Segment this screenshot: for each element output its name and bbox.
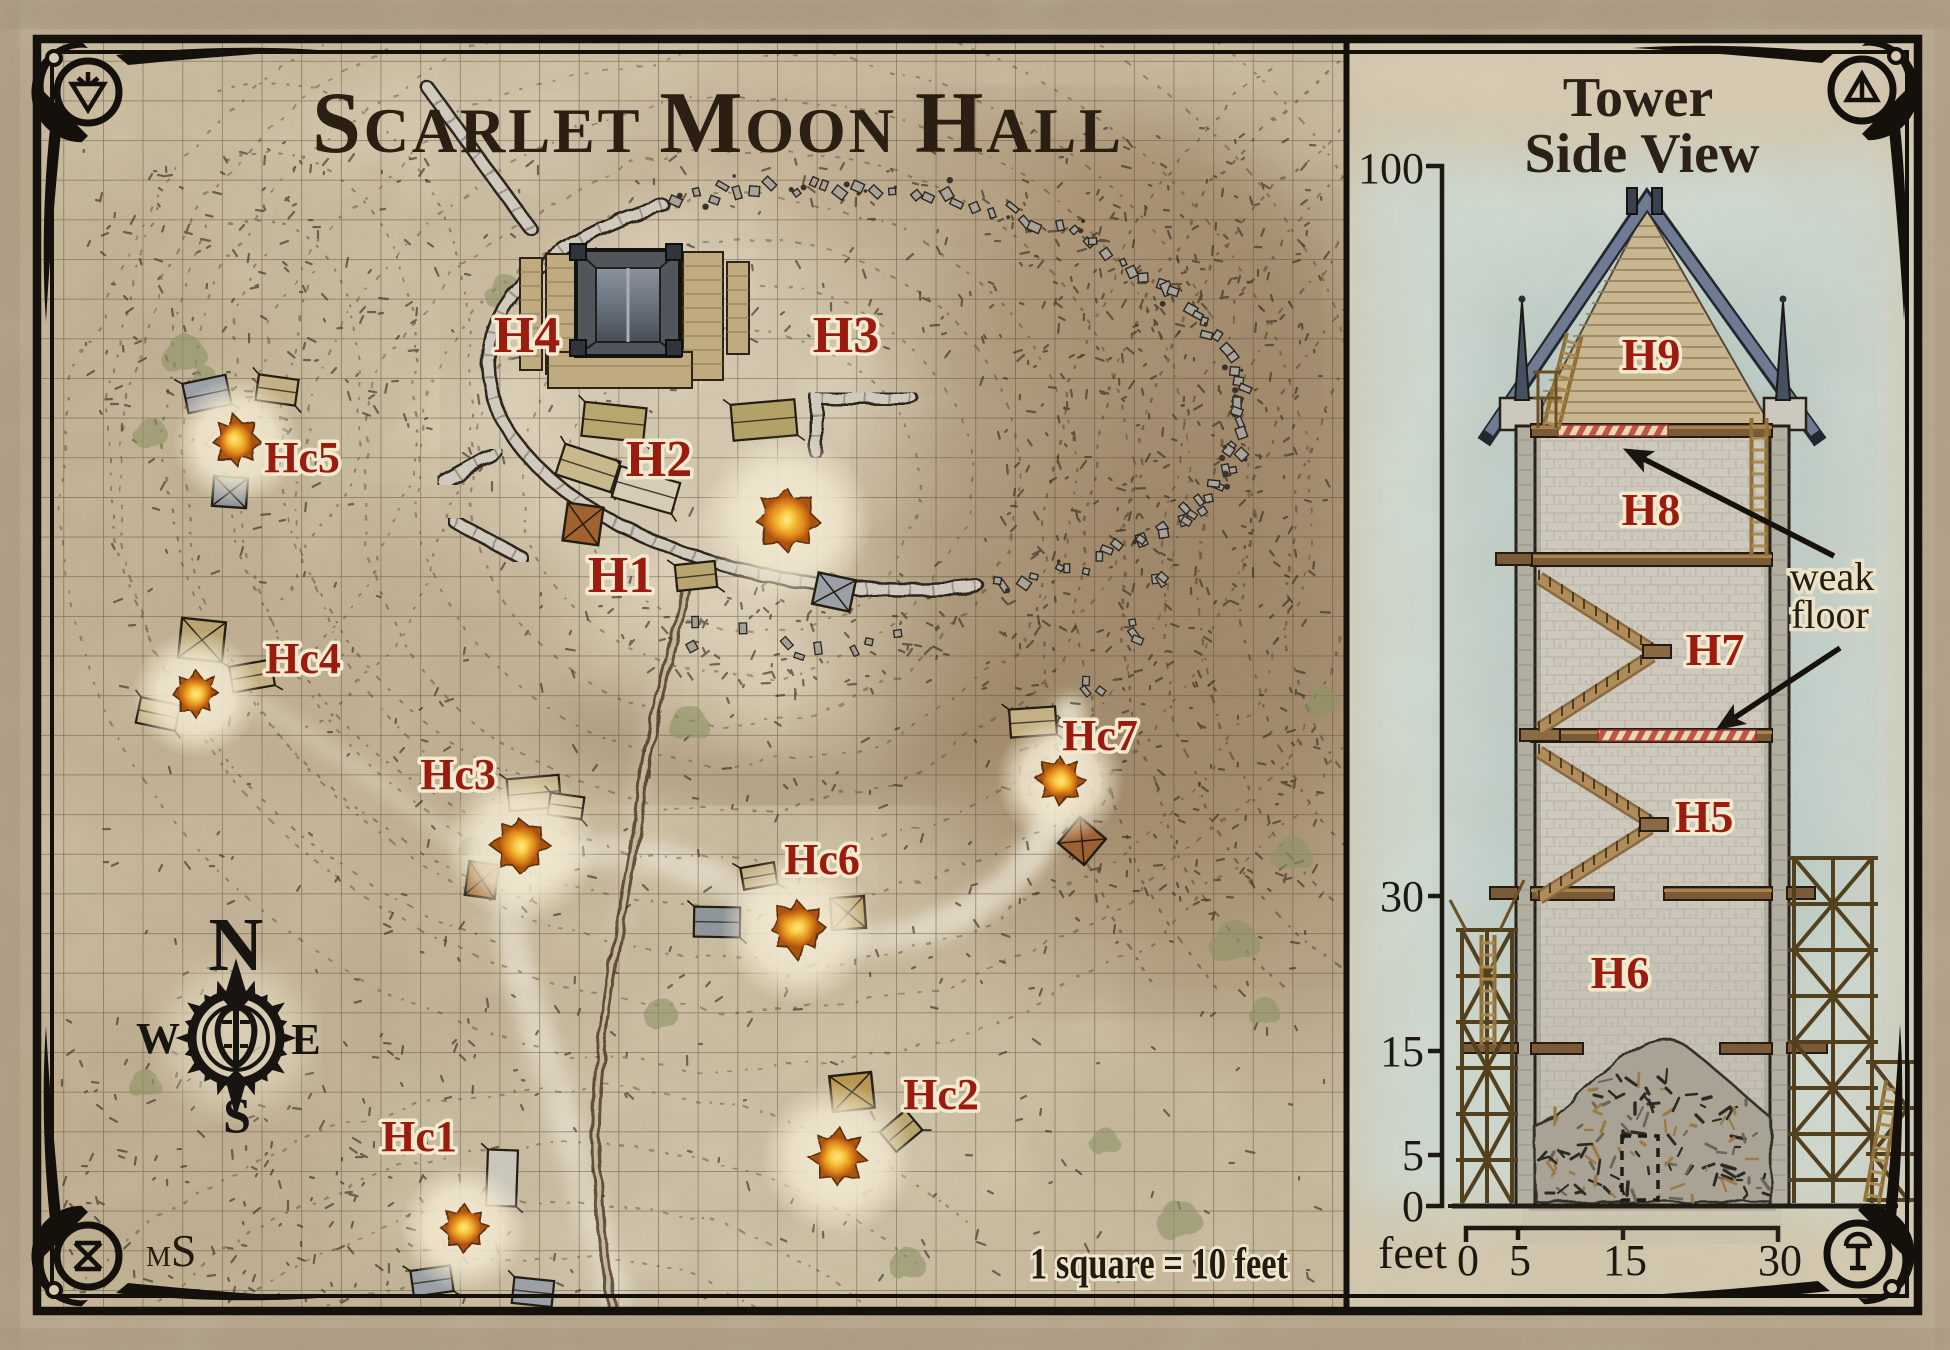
svg-text:Hc7: Hc7 [1062, 711, 1138, 760]
svg-text:S: S [223, 1087, 251, 1143]
svg-text:Hc6: Hc6 [784, 835, 860, 884]
svg-text:15: 15 [1603, 1236, 1647, 1285]
svg-text:H9: H9 [1622, 329, 1681, 380]
svg-text:H1: H1 [588, 547, 654, 604]
svg-text:30: 30 [1380, 872, 1424, 921]
svg-text:H5: H5 [1675, 791, 1734, 842]
svg-text:floor: floor [1791, 592, 1869, 637]
svg-text:5: 5 [1402, 1131, 1424, 1180]
svg-text:Hc5: Hc5 [264, 433, 340, 482]
svg-text:Tower: Tower [1563, 67, 1713, 129]
svg-text:W: W [136, 1014, 180, 1063]
svg-text:feet: feet [1378, 1227, 1447, 1278]
svg-text:0: 0 [1402, 1182, 1424, 1231]
svg-text:H4: H4 [494, 307, 560, 364]
svg-text:5: 5 [1509, 1236, 1531, 1285]
svg-text:H8: H8 [1622, 484, 1681, 535]
svg-text:30: 30 [1758, 1236, 1802, 1285]
svg-text:E: E [291, 1015, 320, 1064]
svg-text:H6: H6 [1591, 947, 1650, 998]
svg-text:H3: H3 [813, 307, 879, 364]
svg-text:H7: H7 [1686, 624, 1745, 675]
svg-text:Hc4: Hc4 [265, 634, 341, 683]
svg-text:N: N [209, 903, 264, 987]
svg-text:Hc2: Hc2 [903, 1070, 979, 1119]
svg-text:0: 0 [1457, 1236, 1479, 1285]
svg-text:1 square = 10 feet: 1 square = 10 feet [1030, 1239, 1288, 1288]
svg-text:15: 15 [1380, 1027, 1424, 1076]
svg-text:Hc1: Hc1 [381, 1112, 457, 1161]
svg-text:Side View: Side View [1525, 123, 1760, 185]
svg-text:100: 100 [1358, 144, 1424, 193]
svg-text:Hc3: Hc3 [420, 750, 496, 799]
svg-text:H2: H2 [626, 431, 692, 488]
